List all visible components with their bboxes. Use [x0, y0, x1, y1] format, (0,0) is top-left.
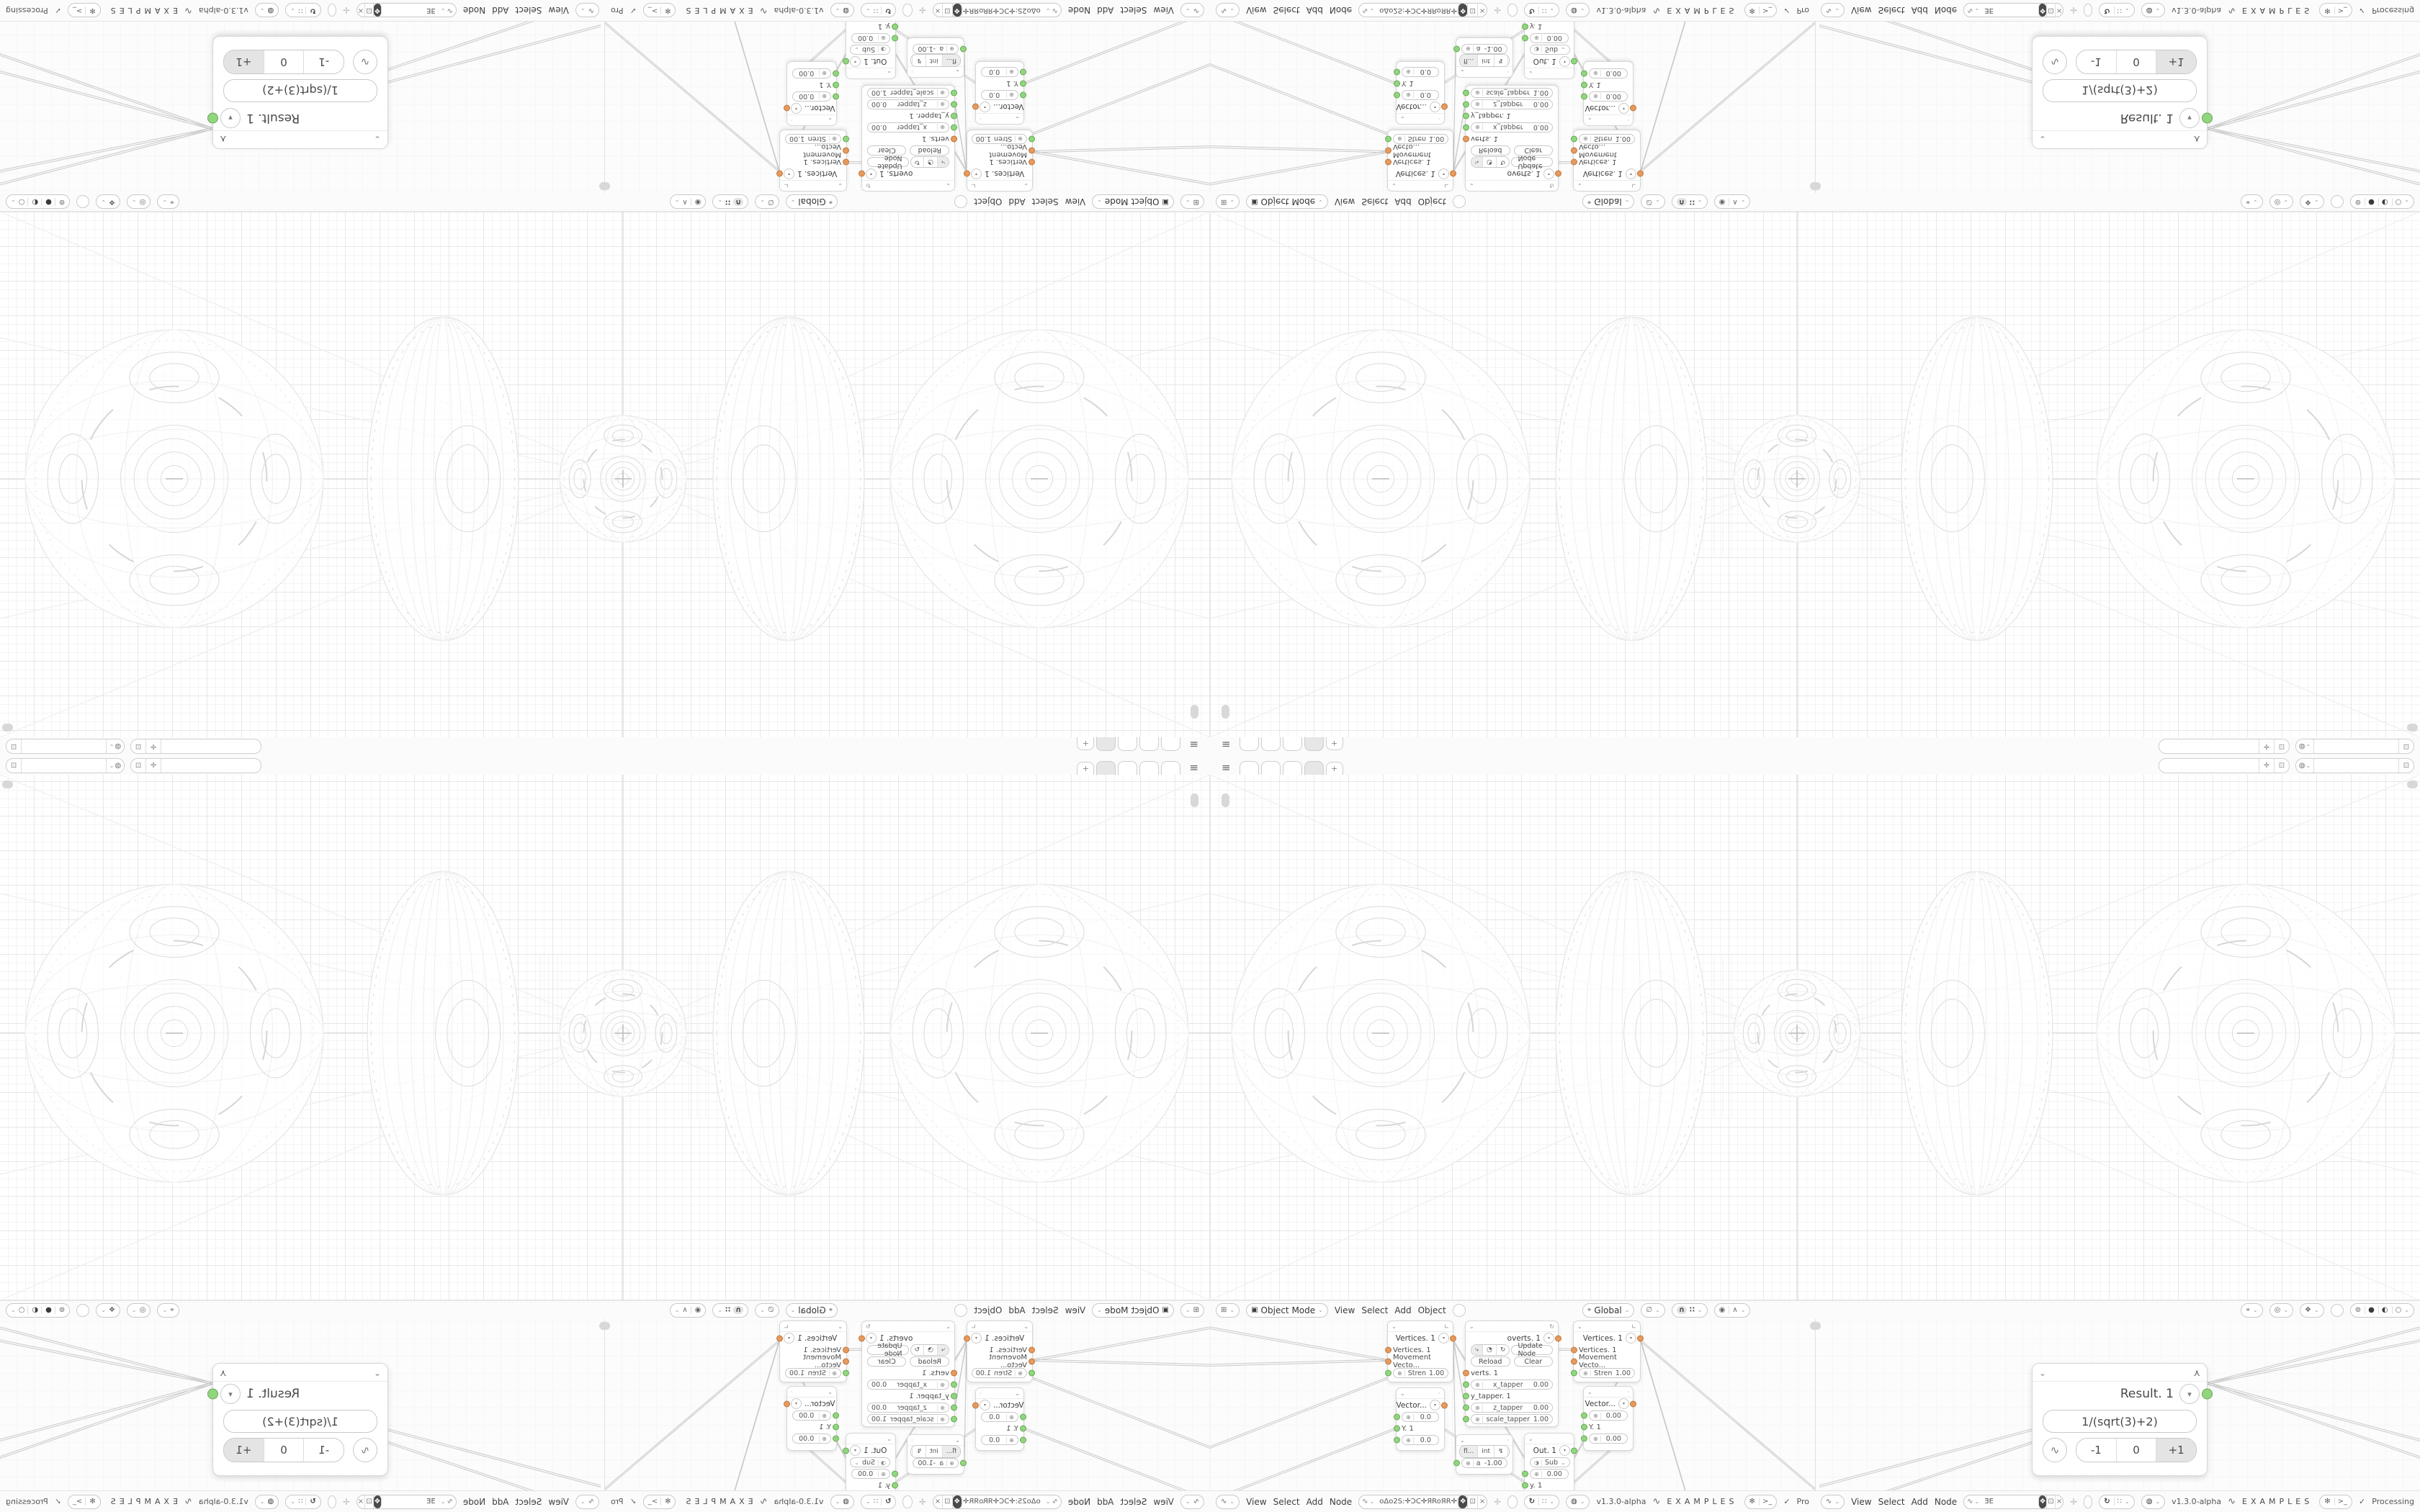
strength-field[interactable]: ⊕Stren1.00: [972, 134, 1027, 144]
view-layer-field[interactable]: [2313, 759, 2398, 773]
output-socket[interactable]: [784, 105, 791, 112]
cycle-icon[interactable]: ↻: [911, 1345, 925, 1355]
editor-type-button[interactable]: ∿⌄: [1180, 1495, 1204, 1509]
flask-icon[interactable]: ✻: [2324, 1498, 2330, 1506]
output-socket[interactable]: [1450, 171, 1456, 177]
dropdown-icon[interactable]: ▾: [1626, 1333, 1636, 1344]
workspace-tab-active[interactable]: [1304, 761, 1324, 775]
viewport-edge-handle[interactable]: [1222, 705, 1229, 719]
scene-selector[interactable]: ✛ ⊡: [2159, 758, 2290, 773]
x-value-field[interactable]: ⊕0.0: [1402, 1412, 1439, 1422]
copy-icon[interactable]: ⊡: [2046, 4, 2054, 17]
new-layer-icon[interactable]: ⊡: [2398, 739, 2414, 753]
update-mode-switch[interactable]: ⤷◔↻: [910, 156, 949, 168]
input-socket[interactable]: [1581, 1436, 1587, 1442]
xray-button[interactable]: ❖⌄: [2300, 1303, 2324, 1318]
input-socket[interactable]: [1385, 159, 1391, 166]
area-divider[interactable]: [604, 0, 605, 193]
dropdown-icon[interactable]: ▾: [1430, 102, 1440, 112]
input-socket[interactable]: [843, 136, 850, 143]
node-overts[interactable]: ⌄↻ overts. 1▾ ⤷◔↻ Update Node Reload Cle…: [861, 1320, 955, 1427]
flask-icon[interactable]: ✻: [89, 1498, 95, 1506]
input-socket[interactable]: [1385, 148, 1391, 154]
tree-selector[interactable]: ∿⌄ oΔo2S:✛ƆC✛ЯRoЯR✛ƆC✛:2SoΔo ❖ ⊡ ×: [933, 1495, 1062, 1509]
flask-icon[interactable]: ✻: [1749, 1498, 1755, 1506]
rendered-shading-icon[interactable]: ○: [2392, 1306, 2402, 1314]
editor-type-button[interactable]: ⊞⌄: [1180, 195, 1204, 210]
input-socket[interactable]: [951, 125, 958, 131]
int-option[interactable]: int: [1477, 55, 1494, 66]
tools-pill[interactable]: ✻>_: [1744, 4, 1778, 18]
bolt-icon[interactable]: ↯: [913, 55, 926, 66]
collapse-icon[interactable]: ⌄: [1469, 1323, 1474, 1330]
cycle-icon[interactable]: ↻: [1496, 1345, 1510, 1355]
close-icon[interactable]: ×: [357, 1495, 365, 1508]
z-value-field[interactable]: ⊕0.0: [1402, 1435, 1439, 1445]
area-divider[interactable]: [1815, 1319, 1816, 1512]
input-socket[interactable]: [843, 1359, 850, 1365]
z-value-field[interactable]: ⊕0.0: [1402, 67, 1439, 77]
output-socket[interactable]: [973, 1402, 980, 1408]
collapse-icon[interactable]: ⌄: [374, 1368, 381, 1378]
terminal-icon[interactable]: >_: [73, 6, 86, 14]
node-math[interactable]: ⌄· fl...int↯▾ ⊕a-1.00: [907, 1434, 964, 1475]
update-mode-switch[interactable]: ⤷◔↻: [910, 1344, 949, 1356]
dropdown-icon[interactable]: ▾: [1626, 168, 1636, 179]
workspace-tab[interactable]: [1240, 737, 1259, 751]
x-value-field[interactable]: ⊕0.00: [792, 91, 831, 102]
shading-mode-switch[interactable]: ⊚ ● ◐ ○ ⌄: [2350, 195, 2414, 210]
workspace-tab[interactable]: [1161, 761, 1180, 775]
input-socket[interactable]: [1581, 71, 1587, 77]
mode-selector[interactable]: ▣Object Mode⌄: [1246, 1303, 1328, 1318]
input-socket[interactable]: [1571, 1370, 1577, 1377]
menu-object[interactable]: Object: [974, 197, 1002, 207]
dropdown-icon[interactable]: ▾: [1618, 103, 1629, 114]
output-socket[interactable]: [843, 1447, 850, 1454]
collapse-icon[interactable]: ⌄: [1587, 1389, 1592, 1395]
dropdown-icon[interactable]: ▾: [850, 56, 861, 67]
number-type-switch[interactable]: fl...int↯▾: [1459, 1445, 1510, 1458]
clear-button[interactable]: Clear: [867, 1356, 907, 1367]
input-socket[interactable]: [1463, 113, 1469, 120]
z-value-field[interactable]: ⊕0.0: [981, 1435, 1018, 1445]
close-icon[interactable]: ×: [2055, 4, 2063, 17]
input-socket[interactable]: [1021, 81, 1027, 87]
copy-icon[interactable]: ⊡: [2046, 1495, 2054, 1508]
input-socket[interactable]: [892, 1482, 899, 1489]
dropdown-icon[interactable]: ▾: [971, 1333, 982, 1344]
tools-pill[interactable]: ✻>_: [643, 4, 676, 18]
terminal-icon[interactable]: >_: [648, 6, 661, 14]
annotate-tool-button[interactable]: [954, 1304, 967, 1317]
strength-field[interactable]: ⊕Stren1.00: [785, 1368, 841, 1378]
increment-button[interactable]: +1: [224, 1439, 264, 1462]
expression-field[interactable]: 1/(sqrt(3)+2): [2043, 79, 2197, 102]
x-tapper-field[interactable]: ⊕x_tapper0.00: [867, 122, 949, 132]
update-all-button[interactable]: ↻∷⌄: [861, 4, 896, 18]
update-all-button[interactable]: ↻∷⌄: [2099, 1495, 2134, 1509]
input-socket[interactable]: [1463, 1416, 1469, 1423]
transform-orientation[interactable]: ⌖Global⌄: [786, 195, 838, 210]
workspace-tab[interactable]: [1139, 737, 1159, 751]
add-workspace-button[interactable]: +: [1326, 762, 1343, 775]
dropdown-icon[interactable]: ▾: [791, 103, 802, 114]
pin-scene-icon[interactable]: ✛: [146, 759, 161, 773]
refresh-icon[interactable]: ↻: [866, 182, 871, 189]
strength-field[interactable]: ⊕Stren1.00: [1579, 1368, 1635, 1378]
input-socket[interactable]: [1029, 136, 1036, 143]
node-result[interactable]: ⌄⋏ Result. 1▾ 1/(sqrt(3)+2) ∿ -1 0 +1: [2032, 36, 2208, 149]
fake-user-shield-icon[interactable]: ❖: [2038, 4, 2046, 17]
tools-pill[interactable]: ✻>_: [2319, 4, 2352, 18]
scene-name-field[interactable]: [2159, 739, 2259, 753]
copy-icon[interactable]: ⊡: [365, 1495, 373, 1508]
dropdown-icon[interactable]: ▾: [910, 55, 913, 66]
output-socket[interactable]: [784, 1400, 791, 1407]
input-socket[interactable]: [1463, 136, 1469, 143]
input-socket[interactable]: [1029, 159, 1036, 166]
dropdown-icon[interactable]: ▾: [220, 108, 241, 128]
input-socket[interactable]: [1463, 1370, 1469, 1377]
workspace-tab[interactable]: [1240, 761, 1259, 775]
update-all-button[interactable]: ↻∷⌄: [861, 1495, 896, 1509]
node-vertices-left[interactable]: ⌄∟ Vertices. 1▾ Vertices. 1 Movement Vec…: [1387, 130, 1453, 192]
mode-selector[interactable]: ▣Object Mode⌄: [1092, 195, 1174, 210]
material-shading-icon[interactable]: ◐: [32, 198, 42, 206]
dropdown-icon[interactable]: ▾: [2179, 1384, 2200, 1404]
fake-user-shield-icon[interactable]: ❖: [374, 4, 382, 17]
examples-menu[interactable]: EXAMPLES: [682, 6, 753, 15]
output-socket[interactable]: [859, 171, 866, 177]
refresh-icon[interactable]: ↻: [1549, 182, 1554, 189]
node-vertices-right[interactable]: ⌄∟ Vertices. 1▾ Vertices. 1 Movement Vec…: [1573, 130, 1641, 192]
area-corner-handle[interactable]: [599, 1322, 610, 1330]
mode-selector[interactable]: ▣Object Mode⌄: [1246, 195, 1328, 210]
menu-view[interactable]: View: [1065, 1305, 1085, 1315]
input-socket[interactable]: [1385, 1347, 1391, 1354]
collapse-icon[interactable]: ⌄: [946, 1323, 951, 1330]
tree-name[interactable]: oΔo2S:✛ƆC✛ЯRoЯR✛ƆC✛:2SoΔo: [962, 1498, 1043, 1506]
solid-shading-icon[interactable]: ●: [2365, 1306, 2375, 1314]
annotate-tool-button[interactable]: [1453, 1304, 1466, 1317]
update-mode-switch[interactable]: ⤷◔↻: [1471, 1344, 1510, 1356]
flask-icon[interactable]: ✻: [665, 6, 671, 14]
update-all-button[interactable]: ↻∷⌄: [285, 4, 321, 18]
node-editor-region[interactable]: ⌄∟ Vertices. 1▾ Vertices. 1 Movement Vec…: [1210, 1319, 2420, 1512]
wireframe-shading-icon[interactable]: ⊚: [2355, 1306, 2361, 1314]
input-socket[interactable]: [1522, 35, 1528, 42]
editor-type-button[interactable]: ∿⌄: [1821, 4, 1845, 18]
z-tapper-field[interactable]: ⊕z_tapper0.00: [1471, 99, 1553, 109]
output-socket[interactable]: [2202, 113, 2213, 124]
menu-view[interactable]: View: [1335, 197, 1355, 207]
link-toggle[interactable]: ∿: [2043, 1438, 2067, 1462]
collapse-icon[interactable]: ⌄: [1587, 117, 1592, 123]
collapse-icon[interactable]: ⌄: [887, 70, 892, 76]
menu-add[interactable]: Add: [1394, 1305, 1411, 1315]
new-scene-icon[interactable]: ⊡: [2274, 759, 2289, 773]
input-socket[interactable]: [951, 1370, 958, 1377]
new-layer-icon[interactable]: ⊡: [2398, 759, 2414, 773]
number-type-switch[interactable]: fl...int↯▾: [1459, 54, 1510, 67]
bake-button[interactable]: ◍⌄: [830, 4, 854, 18]
node-editor-region[interactable]: ⌄∟ Vertices. 1▾ Vertices. 1 Movement Vec…: [0, 1319, 1210, 1512]
expression-field[interactable]: 1/(sqrt(3)+2): [2043, 1410, 2197, 1433]
pin-icon[interactable]: ✛: [2070, 6, 2077, 16]
input-socket[interactable]: [1463, 1382, 1469, 1388]
close-icon[interactable]: ×: [933, 4, 943, 17]
menu-select[interactable]: Select: [1361, 1305, 1388, 1315]
copy-icon[interactable]: ⊡: [1467, 1495, 1476, 1508]
menu-view[interactable]: View: [1851, 1497, 1871, 1507]
increment-button[interactable]: +1: [224, 50, 264, 73]
zero-button[interactable]: 0: [264, 50, 305, 73]
menu-node[interactable]: Node: [463, 1497, 485, 1507]
workspace-tab-active[interactable]: [1096, 761, 1116, 775]
input-socket[interactable]: [1581, 94, 1587, 100]
dropdown-icon[interactable]: ▾: [971, 168, 982, 179]
handle-icon[interactable]: ⋏: [220, 134, 227, 145]
input-socket[interactable]: [1021, 1437, 1027, 1444]
output-socket[interactable]: [964, 1335, 971, 1341]
editor-type-button[interactable]: ∿⌄: [575, 4, 599, 18]
new-layer-icon[interactable]: ⊡: [6, 739, 22, 753]
tree-selector[interactable]: ∿⌄ ƎE ❖ ⊡ ×: [357, 4, 457, 18]
scale-tapper-field[interactable]: ⊕scale_tapper1.00: [867, 88, 949, 98]
x-value-field[interactable]: ⊕0.0: [981, 1412, 1018, 1422]
bolt-icon[interactable]: ↯: [1494, 1446, 1507, 1457]
input-socket[interactable]: [1522, 24, 1528, 30]
input-socket[interactable]: [892, 24, 899, 30]
decrement-button[interactable]: -1: [304, 1439, 344, 1462]
tools-pill[interactable]: ✻>_: [1744, 1495, 1778, 1509]
transform-orientation[interactable]: ⌖Global⌄: [786, 1303, 838, 1318]
x-value-field[interactable]: ⊕0.00: [792, 1410, 831, 1421]
menu-select[interactable]: Select: [515, 1497, 542, 1507]
workspace-tab[interactable]: [1283, 761, 1302, 775]
terminal-icon[interactable]: >_: [1759, 6, 1772, 14]
node-out[interactable]: ⌄ Out. 1▾ ◑Sub⌄ ⊕0.00 y. 1: [846, 1433, 896, 1496]
input-socket[interactable]: [1394, 69, 1400, 76]
timer-icon[interactable]: ◔: [924, 157, 938, 167]
input-socket[interactable]: [1571, 1359, 1577, 1365]
wireframe-shading-icon[interactable]: ⊚: [59, 1306, 65, 1314]
node-vertices-right[interactable]: ⌄∟ Vertices. 1▾ Vertices. 1 Movement Vec…: [779, 1320, 847, 1382]
menu-select[interactable]: Select: [1032, 197, 1059, 207]
tree-name[interactable]: ƎE: [1982, 6, 2038, 14]
workspace-tab-active[interactable]: [1096, 737, 1116, 751]
blank-toggle[interactable]: [328, 1495, 336, 1508]
dropdown-icon[interactable]: ▾: [1559, 56, 1570, 67]
menu-select[interactable]: Select: [1120, 1497, 1147, 1507]
dropdown-icon[interactable]: ▾: [910, 1446, 913, 1457]
input-socket[interactable]: [1463, 90, 1469, 96]
decrement-button[interactable]: -1: [304, 50, 344, 73]
editor-type-button[interactable]: ⊞⌄: [1216, 1303, 1240, 1318]
input-socket[interactable]: [1029, 1359, 1036, 1365]
collapse-icon[interactable]: ⌄: [2039, 1368, 2046, 1378]
menu-object[interactable]: Object: [974, 1305, 1002, 1315]
show-gizmo-button[interactable]: ⌖⌄: [157, 195, 179, 210]
input-socket[interactable]: [1522, 1471, 1528, 1477]
viewport-3d[interactable]: [0, 212, 1210, 737]
snap-toggle[interactable]: ∩∷⌄: [1672, 1303, 1708, 1318]
overlays-button[interactable]: ◎⌄: [127, 195, 151, 210]
input-socket[interactable]: [892, 35, 899, 42]
tree-selector[interactable]: ∿⌄ ƎE ❖ ⊡ ×: [1963, 1495, 2063, 1509]
output-socket[interactable]: [1637, 1335, 1644, 1341]
menu-add[interactable]: Add: [492, 6, 508, 16]
menu-view[interactable]: View: [1065, 197, 1085, 207]
workspace-tab[interactable]: [1139, 761, 1159, 775]
menu-node[interactable]: Node: [1330, 1497, 1352, 1507]
add-workspace-button[interactable]: +: [1326, 737, 1343, 750]
clear-button[interactable]: Clear: [867, 145, 907, 156]
decrement-button[interactable]: -1: [2076, 50, 2116, 73]
view-layer-selector[interactable]: ◍⌄ ⊡: [2295, 758, 2414, 773]
input-socket[interactable]: [833, 94, 840, 100]
input-socket[interactable]: [833, 71, 840, 77]
update-node-button[interactable]: Update Node: [1511, 157, 1553, 167]
fake-user-shield-icon[interactable]: ❖: [1458, 1495, 1467, 1508]
timer-icon[interactable]: ◔: [924, 1345, 938, 1355]
fake-user-shield-icon[interactable]: ❖: [953, 4, 962, 17]
shading-mode-switch[interactable]: ⊚ ● ◐ ○ ⌄: [6, 1303, 70, 1318]
input-socket[interactable]: [1463, 102, 1469, 108]
node-vector-right[interactable]: ⌄· Vector...▾ ⊕0.00 Y. 1 ⊕0.00: [786, 61, 837, 126]
editor-type-button[interactable]: ∿⌄: [1216, 4, 1240, 18]
reload-button[interactable]: Reload: [1471, 145, 1510, 156]
close-icon[interactable]: ×: [2055, 1495, 2063, 1508]
xray-button[interactable]: ❖⌄: [96, 195, 120, 210]
redo-icon[interactable]: ⤷: [1471, 1345, 1482, 1355]
output-socket[interactable]: [859, 1335, 866, 1341]
pin-scene-icon[interactable]: ✛: [146, 739, 161, 753]
flask-icon[interactable]: ✻: [1749, 6, 1755, 14]
collapse-icon[interactable]: ⌄: [887, 1436, 892, 1442]
scene-selector[interactable]: ✛ ⊡: [130, 758, 261, 773]
input-socket[interactable]: [1394, 92, 1400, 99]
shading-mode-switch[interactable]: ⊚ ● ◐ ○ ⌄: [2350, 1303, 2414, 1318]
pin-icon[interactable]: ✛: [1494, 6, 1501, 16]
solid-shading-icon[interactable]: ●: [45, 198, 55, 206]
collapse-icon[interactable]: ⌄: [838, 1323, 843, 1330]
annotate-tool-button[interactable]: [1453, 196, 1466, 209]
output-socket[interactable]: [1453, 46, 1460, 53]
material-shading-icon[interactable]: ◐: [2378, 198, 2388, 206]
input-socket[interactable]: [1463, 125, 1469, 131]
input-socket[interactable]: [1394, 1426, 1400, 1432]
zero-button[interactable]: 0: [2116, 50, 2156, 73]
new-scene-icon[interactable]: ⊡: [2274, 739, 2289, 753]
editor-type-button[interactable]: ∿⌄: [575, 1495, 599, 1509]
pin-scene-icon[interactable]: ✛: [2259, 739, 2274, 753]
update-all-button[interactable]: ↻∷⌄: [285, 1495, 321, 1509]
clear-button[interactable]: Clear: [1514, 145, 1554, 156]
dropdown-icon[interactable]: ▾: [1507, 1446, 1510, 1457]
collapse-icon[interactable]: ⌄: [1023, 1323, 1028, 1330]
output-socket[interactable]: [961, 46, 967, 53]
a-value-field[interactable]: ⊕a-1.00: [1461, 1458, 1507, 1468]
tools-pill[interactable]: ✻>_: [68, 4, 101, 18]
number-type-switch[interactable]: fl...int↯▾: [910, 1445, 961, 1458]
collapse-icon[interactable]: ⌄: [1023, 182, 1028, 189]
rendered-shading-icon[interactable]: ○: [19, 198, 29, 206]
tree-name[interactable]: oΔo2S:✛ƆC✛ЯRoЯR✛ƆC✛:2SoΔo: [962, 6, 1043, 14]
node-vector-left[interactable]: ⌄· Vector...▾ ⊕0.0 Y. 1 ⊕0.0: [975, 61, 1024, 125]
blank-toggle[interactable]: [2084, 4, 2092, 17]
output-socket[interactable]: [208, 113, 219, 124]
int-option[interactable]: int: [1477, 1446, 1494, 1457]
transform-orientation[interactable]: ⌖Global⌄: [1582, 1303, 1635, 1318]
snap-target-button[interactable]: ∅⌄: [755, 195, 779, 210]
scale-tapper-field[interactable]: ⊕scale_tapper1.00: [867, 1414, 949, 1424]
examples-menu[interactable]: EXAMPLES: [107, 6, 178, 15]
node-vector-right[interactable]: ⌄· Vector...▾ ⊕0.00 Y. 1 ⊕0.00: [786, 1386, 837, 1451]
input-socket[interactable]: [1029, 1347, 1036, 1354]
input-socket[interactable]: [833, 82, 840, 89]
input-socket[interactable]: [1463, 1393, 1469, 1400]
menu-add[interactable]: Add: [1008, 197, 1025, 207]
scale-tapper-field[interactable]: ⊕scale_tapper1.00: [1471, 88, 1553, 98]
input-socket[interactable]: [1385, 1370, 1391, 1377]
value-field[interactable]: ⊕0.00: [851, 33, 890, 43]
dropdown-icon[interactable]: ▾: [980, 102, 990, 112]
a-value-field[interactable]: ⊕a-1.00: [913, 44, 959, 54]
collapse-icon[interactable]: ⌄: [1469, 182, 1474, 189]
pin-icon[interactable]: ✛: [919, 1497, 926, 1507]
float-option[interactable]: fl...: [1460, 1446, 1477, 1457]
output-socket[interactable]: [1441, 104, 1448, 110]
proportional-edit-button[interactable]: ◉∧⌄: [1714, 1303, 1751, 1318]
reload-button[interactable]: Reload: [1471, 1356, 1510, 1367]
bake-button[interactable]: ◍⌄: [255, 4, 279, 18]
z-tapper-field[interactable]: ⊕z_tapper0.00: [1471, 1403, 1553, 1413]
link-toggle[interactable]: ∿: [353, 1438, 377, 1462]
input-socket[interactable]: [833, 1436, 840, 1442]
pin-icon[interactable]: ✛: [2070, 1497, 2077, 1507]
output-socket[interactable]: [1555, 171, 1561, 177]
menu-select[interactable]: Select: [1120, 6, 1147, 16]
show-gizmo-button[interactable]: ⌖⌄: [2241, 195, 2262, 210]
clear-button[interactable]: Clear: [1514, 1356, 1554, 1367]
tree-name[interactable]: oΔo2S:✛ƆC✛ЯRoЯR✛ƆC✛:2SoΔo: [1377, 1498, 1458, 1506]
input-socket[interactable]: [1394, 1414, 1400, 1421]
redo-icon[interactable]: ⤷: [938, 1345, 949, 1355]
decrement-button[interactable]: -1: [2076, 1439, 2116, 1462]
tree-name[interactable]: ƎE: [382, 1498, 438, 1506]
menu-view[interactable]: View: [548, 1497, 568, 1507]
pin-icon[interactable]: ✛: [1494, 1497, 1501, 1507]
z-tapper-field[interactable]: ⊕z_tapper0.00: [867, 99, 949, 109]
operation-select[interactable]: ◑Sub⌄: [1530, 45, 1570, 55]
input-socket[interactable]: [1385, 136, 1391, 143]
reload-button[interactable]: Reload: [910, 145, 950, 156]
output-socket[interactable]: [1637, 171, 1644, 177]
update-all-button[interactable]: ↻∷⌄: [2099, 4, 2134, 18]
dropdown-icon[interactable]: ▾: [1507, 55, 1510, 66]
editor-type-button[interactable]: ∿⌄: [1216, 1495, 1240, 1509]
refresh-icon[interactable]: ↻: [866, 1323, 871, 1330]
node-editor-region[interactable]: ⌄∟ Vertices. 1▾ Vertices. 1 Movement Vec…: [0, 0, 1210, 193]
close-icon[interactable]: ×: [1477, 1495, 1487, 1508]
output-socket[interactable]: [2202, 1389, 2213, 1400]
close-icon[interactable]: ×: [1477, 4, 1487, 17]
collapse-icon[interactable]: ⌄: [1015, 115, 1020, 122]
input-socket[interactable]: [1021, 1414, 1027, 1421]
blank-toggle[interactable]: [328, 4, 336, 17]
